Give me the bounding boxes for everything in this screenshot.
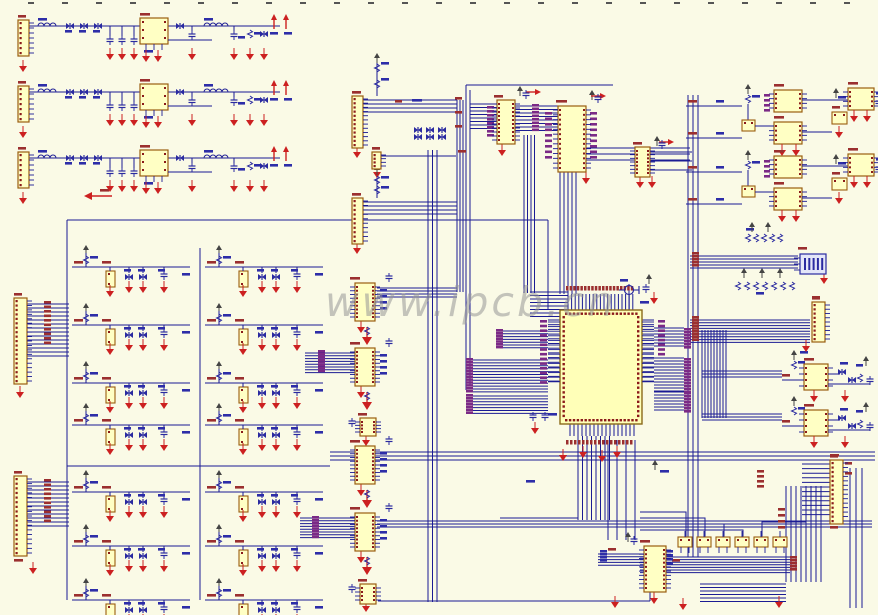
filter-cell [72, 361, 190, 413]
wires [27, 58, 875, 608]
filter-cell [72, 470, 190, 522]
filter-cell [205, 403, 323, 455]
connectors [14, 91, 848, 556]
filter-cell [205, 303, 323, 355]
filter-cell [72, 578, 190, 615]
schematic-canvas: www.ipcb.cn [0, 0, 878, 615]
filter-cell [205, 578, 323, 615]
amp-block [686, 82, 878, 156]
power-supply-row [18, 79, 292, 138]
filter-cell [205, 245, 323, 297]
transistor-boxes [678, 531, 787, 553]
filter-cell [72, 245, 190, 297]
opamp-stage [782, 396, 874, 448]
filter-cell [72, 524, 190, 576]
top-edge-ticks [28, 2, 850, 4]
amp-block [686, 148, 878, 222]
filter-cell [205, 470, 323, 522]
main-mcu-qfp [548, 310, 654, 424]
filter-cell [205, 361, 323, 413]
schematic-drawing [0, 0, 878, 615]
opamp-stage [782, 350, 874, 402]
filter-cell [72, 403, 190, 455]
filter-cell [72, 303, 190, 355]
power-supply-row [18, 145, 292, 204]
symbols [16, 53, 828, 612]
power-supply-row [18, 13, 292, 72]
